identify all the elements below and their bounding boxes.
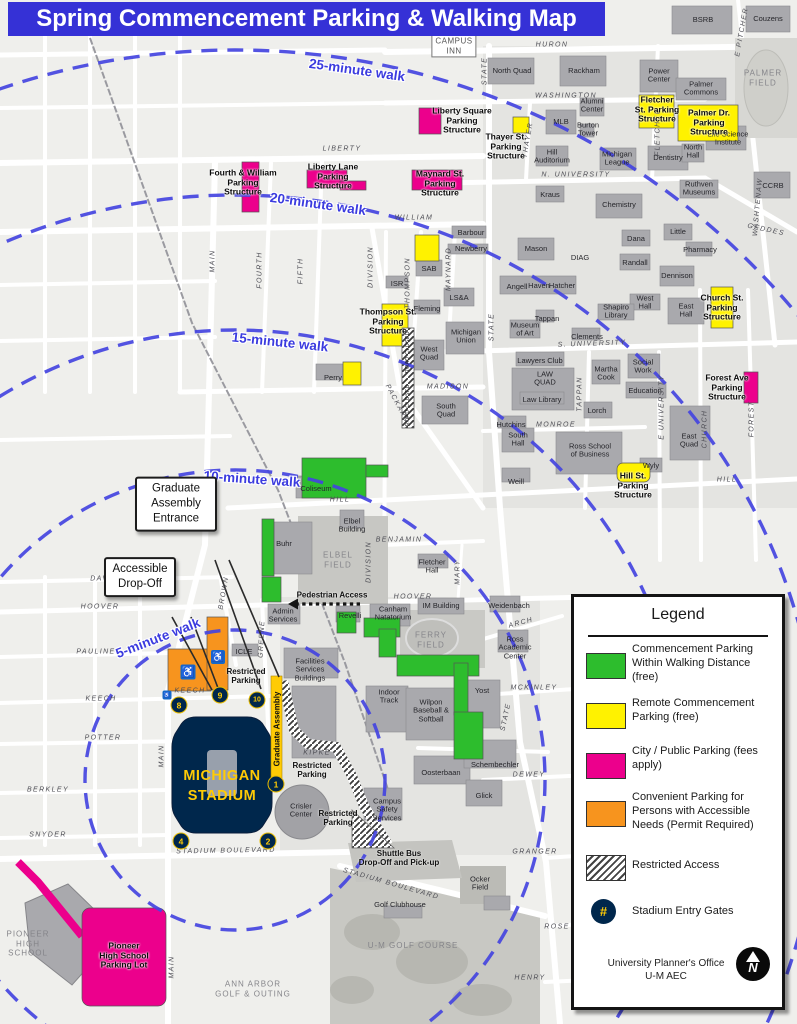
area-label: ELBEL FIELD <box>323 550 353 569</box>
building-label: Fleming <box>414 305 441 313</box>
building-label: IM Building <box>422 602 459 610</box>
building-label: Ross School of Business <box>569 443 611 460</box>
legend-swatch-green <box>586 653 626 679</box>
legend-rule <box>588 635 768 637</box>
building-label: Palmer Commons <box>684 81 718 98</box>
north-letter: N <box>736 960 770 975</box>
building-label: Ruthven Museums <box>683 181 716 198</box>
legend-label-magenta: City / Public Parking (fees apply) <box>632 745 776 773</box>
building-label: Michigan Union <box>451 329 481 346</box>
walk-time-label: 25-minute walk <box>308 56 406 84</box>
walk-time-label: 10-minute walk <box>203 468 301 490</box>
stadium-gate-10: 10 <box>249 692 266 709</box>
street-label: DIVISION <box>366 541 373 583</box>
building-label: Canham Natatorium <box>375 606 412 623</box>
accessible-parking-icon: ♿ <box>211 650 225 664</box>
street-label: SNYDER <box>29 832 67 839</box>
street-label: HILL <box>330 497 350 504</box>
street-label: POTTER <box>85 735 122 742</box>
street-label: MADISON <box>427 384 469 391</box>
callout: Graduate Assembly Entrance <box>135 477 217 532</box>
building-label: East Quad <box>680 433 698 450</box>
building-label: Law Library <box>523 396 562 404</box>
street-label: DIVISION <box>368 246 375 288</box>
stadium-gate-9: 9 <box>212 687 229 704</box>
building-label: Ocker Field <box>470 876 490 893</box>
building-label: Newberry <box>455 245 487 253</box>
street-label: STATE <box>482 57 489 86</box>
walk-time-label: 5-minute walk <box>114 615 203 661</box>
stadium-gate-4: 4 <box>173 833 190 850</box>
building-label: CCRB <box>762 182 783 190</box>
building-label: Ross Academic Center <box>499 635 532 660</box>
area-label: ANN ARBOR GOLF & OUTING <box>215 979 291 998</box>
area-label: PALMER FIELD <box>744 68 782 87</box>
stadium-name-line1: MICHIGAN <box>183 768 260 784</box>
building-label: Pharmacy <box>683 246 717 254</box>
street-label: HENRY <box>514 975 545 982</box>
legend-credit: University Planner's Office U-M AEC <box>602 957 730 983</box>
building-label: Hutchins <box>496 421 525 429</box>
map-note: Graduate Assembly <box>273 692 282 767</box>
building-label: Dana <box>627 235 645 243</box>
legend-title: Legend <box>574 606 782 624</box>
building-label: BSRB <box>693 16 713 24</box>
legend-label-green: Commencement Parking Within Walking Dist… <box>632 643 776 684</box>
street-label: HILL <box>717 477 737 484</box>
building-label: Dentistry <box>653 154 683 162</box>
page-title: Spring Commencement Parking & Walking Ma… <box>8 2 605 36</box>
map-note: Shuttle Bus Drop-Off and Pick-up <box>359 849 439 867</box>
building-label: Facilities Services Buildings <box>295 657 325 682</box>
building-label: Revelli <box>339 612 362 620</box>
building-label: Lorch <box>588 407 607 415</box>
callout: Accessible Drop-Off <box>104 557 176 597</box>
street-label: HOOVER <box>394 594 433 601</box>
street-label: CHURCH <box>702 410 709 449</box>
legend-label-orange: Convenient Parking for Persons with Acce… <box>632 791 776 832</box>
street-label: FIFTH <box>298 258 305 285</box>
street-label: MONROE <box>536 422 576 429</box>
building-label: Wilpon Baseball & Softball <box>413 698 449 723</box>
building-label: LAW QUAD <box>534 371 556 388</box>
legend-swatch-magenta <box>586 753 626 779</box>
street-label: BERKLEY <box>27 787 69 794</box>
building-label: Haven <box>528 282 550 290</box>
street-label: GRANGER <box>512 849 557 856</box>
area-label: U-M GOLF COURSE <box>368 941 459 951</box>
walk-time-label: 20-minute walk <box>269 190 367 218</box>
building-label: Wyly <box>643 462 659 470</box>
legend-label-restricted: Restricted Access <box>632 859 776 873</box>
building-label: ISR <box>391 280 404 288</box>
building-label: Indoor Track <box>378 689 399 706</box>
accessible-parking-icon: ♿ <box>163 691 172 700</box>
map-note: Restricted Parking <box>318 809 357 827</box>
building-label: Hill Auditorium <box>534 149 570 166</box>
legend-swatch-orange <box>586 801 626 827</box>
building-label: Yost <box>475 687 489 695</box>
street-label: MCKINLEY <box>511 685 558 692</box>
parking-structure-label: Fourth & William Parking Structure <box>209 169 276 198</box>
stadium-gate-1: 1 <box>268 776 285 793</box>
building-label: Kraus <box>540 191 560 199</box>
building-label: Rackham <box>568 67 600 75</box>
building-label: West Quad <box>420 346 438 363</box>
building-label: SAB <box>421 265 436 273</box>
building-label: Clements <box>571 333 603 341</box>
street-label: THOMPSON <box>405 257 412 309</box>
building-label: Buhr <box>276 540 292 548</box>
street-label: BROWN <box>218 576 231 611</box>
building-label: Social Work <box>633 359 653 376</box>
area-label: CAMPUS INN <box>431 34 476 57</box>
building-label: Alumni Center <box>581 98 604 115</box>
legend-label-yellow: Remote Commencement Parking (free) <box>632 697 776 725</box>
stadium-gate-2: 2 <box>260 833 277 850</box>
walk-time-label: 15-minute walk <box>231 329 329 354</box>
building-label: Randall <box>622 259 647 267</box>
street-label: BENJAMIN <box>376 537 423 544</box>
accessible-parking-icon: ♿ <box>181 665 196 680</box>
building-label: West Hall <box>637 295 654 312</box>
legend-gate-icon: # <box>591 899 616 924</box>
street-label: KEECH <box>174 688 205 695</box>
street-label: FOREST <box>749 401 756 438</box>
parking-structure-label: Maynard St. Parking Structure <box>416 170 464 199</box>
building-label: Burton Tower <box>577 122 599 139</box>
stadium-name-line2: STADIUM <box>188 788 256 804</box>
map-note: ROAD CLOSED <box>405 384 411 426</box>
building-label: Coliseum <box>300 485 331 493</box>
building-label: Little <box>670 228 686 236</box>
building-label: Education <box>628 387 661 395</box>
legend-label-gates: Stadium Entry Gates <box>632 905 776 919</box>
street-label: HURON <box>536 42 569 49</box>
building-label: North Quad <box>493 67 532 75</box>
parking-structure-label: Hill St. Parking Structure <box>614 472 652 501</box>
building-label: Campus Safety Services <box>373 797 402 822</box>
street-label: MAYNARD <box>446 247 453 291</box>
credit-line2: U-M AEC <box>602 970 730 983</box>
street-label: HOOVER <box>81 604 120 611</box>
street-label: TAPPAN <box>577 376 584 411</box>
building-label: Michigan League <box>602 151 632 168</box>
building-label: Schembechler <box>471 761 519 769</box>
street-label: DEWEY <box>513 772 546 779</box>
credit-line1: University Planner's Office <box>602 957 730 970</box>
street-label: STATE <box>500 702 513 731</box>
building-label: Barbour <box>458 229 485 237</box>
building-label: MLB <box>553 118 568 126</box>
building-label: Lawyers Club <box>517 357 562 365</box>
building-label: Hatcher <box>549 282 575 290</box>
building-label: Crisler Center <box>290 803 313 820</box>
building-label: Couzens <box>753 15 783 23</box>
parking-structure-label: Forest Ave Parking Structure <box>705 374 748 403</box>
building-label: Museum of Art <box>511 322 540 339</box>
building-label: ICLE <box>236 648 253 656</box>
parking-structure-label: Fletcher St. Parking Structure <box>635 96 679 125</box>
building-label: Perry <box>324 374 342 382</box>
parking-structure-label: Liberty Lane Parking Structure <box>308 163 359 192</box>
building-label: Admin Services <box>269 608 298 625</box>
legend: Legend Commencement Parking Within Walki… <box>571 594 785 1010</box>
street-label: LIBERTY <box>323 146 362 153</box>
building-label: Weidenbach <box>488 602 530 610</box>
street-label: WILLIAM <box>395 215 434 222</box>
street-label: ARCH <box>508 616 534 629</box>
building-label: Mason <box>525 245 548 253</box>
map-note: Pedestrian Access <box>297 590 368 599</box>
street-label: N. UNIVERSITY <box>541 172 610 179</box>
parking-structure-label: Church St. Parking Structure <box>701 294 744 323</box>
building-label: Fletcher Hall <box>418 559 445 576</box>
street-label: MARY <box>455 559 462 585</box>
street-label: MAIN <box>159 744 166 767</box>
stadium-gate-8: 8 <box>171 697 188 714</box>
street-label: STADIUM BOULEVARD <box>176 847 276 856</box>
building-label: Oosterbaan <box>421 769 460 777</box>
north-compass-icon: N <box>736 947 770 981</box>
map-note: Restricted Parking <box>226 667 265 685</box>
building-label: Shapiro Library <box>603 304 629 321</box>
building-label: Angell <box>507 283 528 291</box>
building-label: Tappan <box>535 315 560 323</box>
street-label: ROSE <box>544 924 569 931</box>
area-label: FERRY FIELD <box>415 630 447 649</box>
building-label: LS&A <box>449 294 468 302</box>
building-label: Elbel Building <box>339 518 366 535</box>
street-label: KEECH <box>85 696 116 703</box>
map-note: ROAD CLOSED <box>405 331 411 373</box>
street-label: E PITCHER <box>734 7 750 57</box>
parking-structure-label: Thayer St. Parking Structure <box>485 133 526 162</box>
building-label: South Quad <box>436 403 456 420</box>
map-canvas: MICHIGAN STADIUM HURONWASHINGTONLIBERTYW… <box>0 0 797 1024</box>
parking-structure-label: Palmer Dr. Parking Structure <box>688 109 730 138</box>
building-label: South Hall <box>508 432 528 449</box>
street-label: PAULINE <box>76 649 115 656</box>
legend-swatch-yellow <box>586 703 626 729</box>
street-label: E UNIVERSITY <box>659 374 666 439</box>
street-label: MAIN <box>169 955 176 978</box>
street-label: STADIUM BOULEVARD <box>342 867 440 901</box>
building-label: North Hall <box>684 144 702 161</box>
building-label: Weill <box>508 478 524 486</box>
building-label: Glick <box>476 792 493 800</box>
building-label: DIAG <box>571 254 589 262</box>
building-label: Golf Clubhouse <box>374 901 426 909</box>
parking-structure-label: Pioneer High School Parking Lot <box>99 942 149 971</box>
legend-swatch-restricted <box>586 855 626 881</box>
street-label: MAIN <box>210 249 217 272</box>
street-label: FOURTH <box>257 251 264 288</box>
building-label: Power Center <box>648 68 671 85</box>
map-note: Restricted Parking <box>292 761 331 779</box>
building-label: Dennison <box>661 272 693 280</box>
parking-structure-label: Liberty Square Parking Structure <box>432 107 492 136</box>
street-label: STATE <box>489 313 496 342</box>
building-label: Chemistry <box>602 201 636 209</box>
street-label: GREENE <box>258 620 267 658</box>
street-label: KIPKE <box>303 750 331 757</box>
area-label: PIONEER HIGH SCHOOL <box>6 930 49 959</box>
building-label: East Hall <box>678 303 693 320</box>
building-label: Martha Cook <box>594 366 617 383</box>
